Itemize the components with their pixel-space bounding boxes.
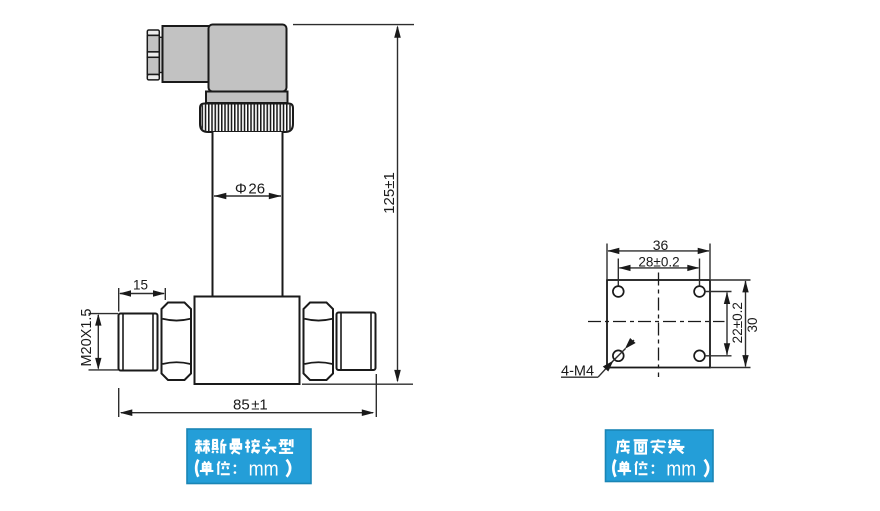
svg-text:36: 36 (653, 237, 669, 253)
svg-text:15: 15 (133, 277, 148, 292)
svg-text:125±1: 125±1 (381, 172, 398, 214)
svg-text:Φ26: Φ26 (235, 181, 265, 198)
svg-text:4-M4: 4-M4 (561, 364, 594, 380)
svg-text:85±1: 85±1 (233, 397, 268, 414)
svg-text:28±0.2: 28±0.2 (638, 254, 679, 269)
svg-text:22±0.2: 22±0.2 (730, 302, 745, 343)
svg-text:mm: mm (249, 457, 279, 480)
svg-text:M20X1.5: M20X1.5 (79, 308, 95, 366)
svg-text:30: 30 (745, 317, 760, 332)
svg-text:mm: mm (666, 457, 696, 480)
